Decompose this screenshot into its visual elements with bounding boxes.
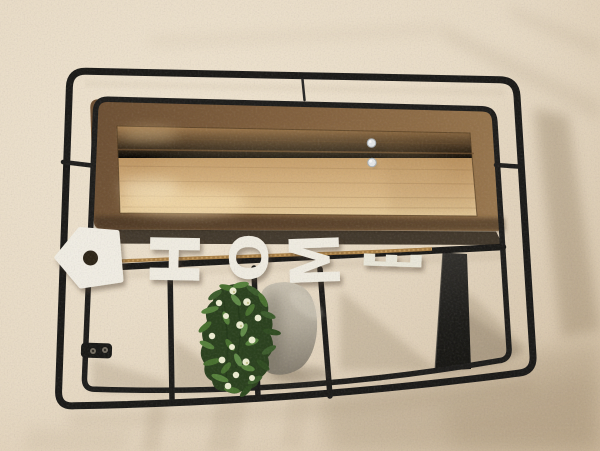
- stucco-grain-light: [0, 0, 600, 451]
- photo-stage: H O M E: [0, 0, 600, 451]
- wall-shelf-photo: H O M E: [0, 0, 600, 451]
